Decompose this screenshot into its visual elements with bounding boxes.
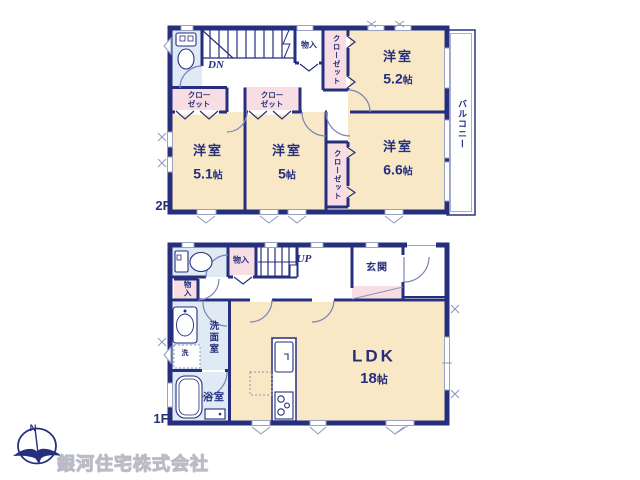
stairs-up-label: UP (297, 253, 312, 265)
balcony-label: バルコニー (456, 99, 466, 149)
room-51-size: 5.1帖 (193, 166, 222, 181)
storage-2f-label: 物入 (301, 42, 317, 51)
floor1-label: 1F (153, 412, 168, 426)
floorplan-page: 洋室 5.2帖 洋室 5.1帖 洋室 5帖 洋室 6.6帖 バルコニー クローゼ… (0, 0, 640, 480)
closet-5-label: クローゼット (259, 91, 286, 110)
washroom-label: 洗面室 (207, 321, 217, 356)
closet-51-label: クローゼット (186, 91, 213, 110)
ldk-size-value: 18 (360, 370, 377, 387)
room-52-name: 洋室 (383, 50, 413, 64)
ldk-name: LDK (352, 348, 396, 367)
room-5-size-unit: 帖 (286, 170, 296, 181)
bathroom-label: 浴室 (203, 393, 225, 404)
room-66-size-unit: 帖 (403, 166, 413, 177)
room-66-name: 洋室 (383, 140, 413, 154)
floor2-label: 2F (155, 199, 170, 213)
entrance-label: 玄関 (366, 263, 388, 274)
compass-north-label: N (30, 424, 37, 434)
closet-52-label: クローゼット (332, 35, 340, 86)
room-5-size-value: 5 (278, 165, 286, 181)
closet-66-label: クローゼット (333, 150, 341, 201)
storage-hall-label: 物入 (233, 257, 249, 266)
room-51-name: 洋室 (193, 144, 223, 158)
ldk-size: 18帖 (360, 371, 388, 388)
stairs-dn-label: DN (208, 59, 224, 71)
compass-icon (13, 428, 62, 464)
room-66-size-value: 6.6 (383, 161, 402, 177)
laundry-label: 洗 (182, 350, 189, 358)
storage-side-label: 物入 (183, 281, 191, 298)
room-51-size-unit: 帖 (213, 170, 223, 181)
room-5-area (245, 112, 326, 210)
ldk-area (231, 302, 445, 421)
floorplan-drawing (0, 0, 640, 480)
room-52-size: 5.2帖 (383, 71, 412, 86)
room-52-size-value: 5.2 (383, 70, 402, 86)
ldk-size-unit: 帖 (377, 374, 388, 386)
room-66-size: 6.6帖 (383, 162, 412, 177)
room-51-size-value: 5.1 (193, 165, 212, 181)
room-52-size-unit: 帖 (403, 75, 413, 86)
room-51-area (172, 112, 245, 210)
company-watermark: 銀河住宅株式会社 (57, 450, 209, 476)
room-5-size: 5帖 (278, 166, 296, 181)
room-5-name: 洋室 (272, 144, 302, 158)
porch-opening (407, 242, 436, 249)
